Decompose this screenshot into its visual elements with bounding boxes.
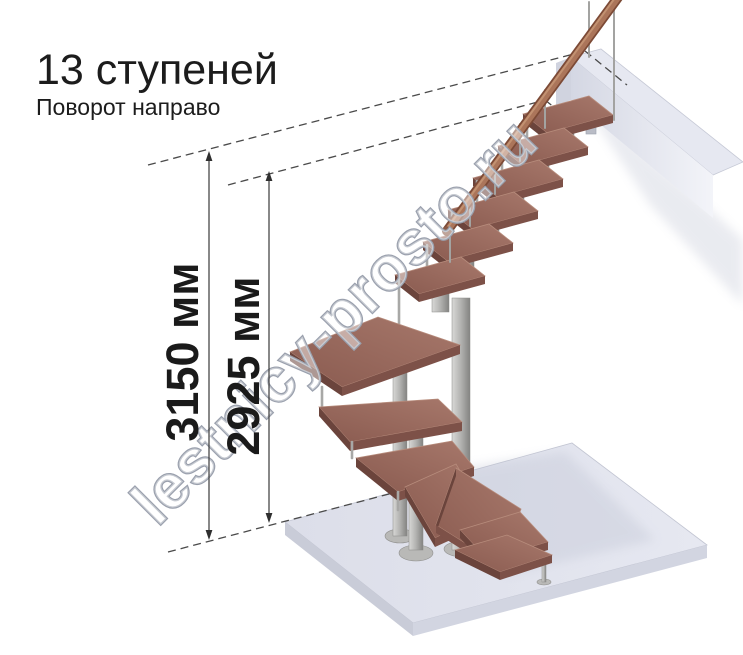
dimension-label-2925: 2925 мм (218, 276, 269, 455)
arrow-up (206, 151, 213, 161)
staircase-diagram: lestnicy-prosto.ru 3150 мм 2925 мм 13 ст… (0, 0, 743, 655)
page-subtitle: Поворот направо (36, 94, 220, 120)
dimension-label-3150: 3150 мм (157, 262, 208, 441)
page-title: 13 ступеней (36, 46, 278, 94)
arrow-down (206, 530, 213, 540)
arrow-down (266, 513, 273, 523)
support-post (393, 352, 407, 536)
arrow-up (266, 171, 273, 181)
diagram-canvas: lestnicy-prosto.ru 3150 мм 2925 мм 13 ст… (0, 0, 743, 655)
upper-landing-beam (556, 49, 743, 305)
